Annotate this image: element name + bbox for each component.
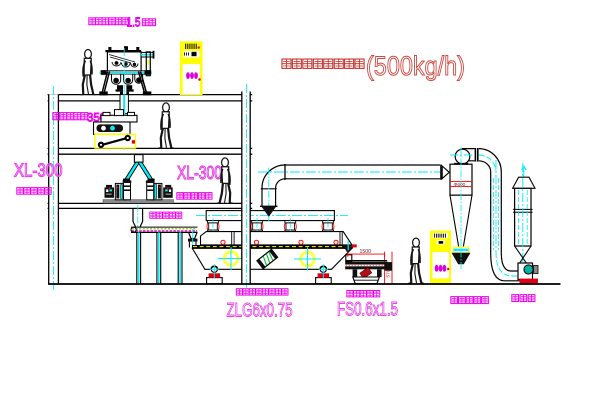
svg-text:1.5: 1.5 [127,16,141,30]
svg-text:FS0.6x1.5: FS0.6x1.5 [337,299,398,321]
svg-text:Φ600: Φ600 [454,182,466,188]
svg-text:XL-300: XL-300 [14,160,63,181]
svg-text:(500kg/h): (500kg/h) [366,51,465,81]
svg-text:1500: 1500 [360,249,372,255]
svg-text:XL-300: XL-300 [177,162,222,183]
svg-text:ZLG6x0.75: ZLG6x0.75 [227,300,293,322]
